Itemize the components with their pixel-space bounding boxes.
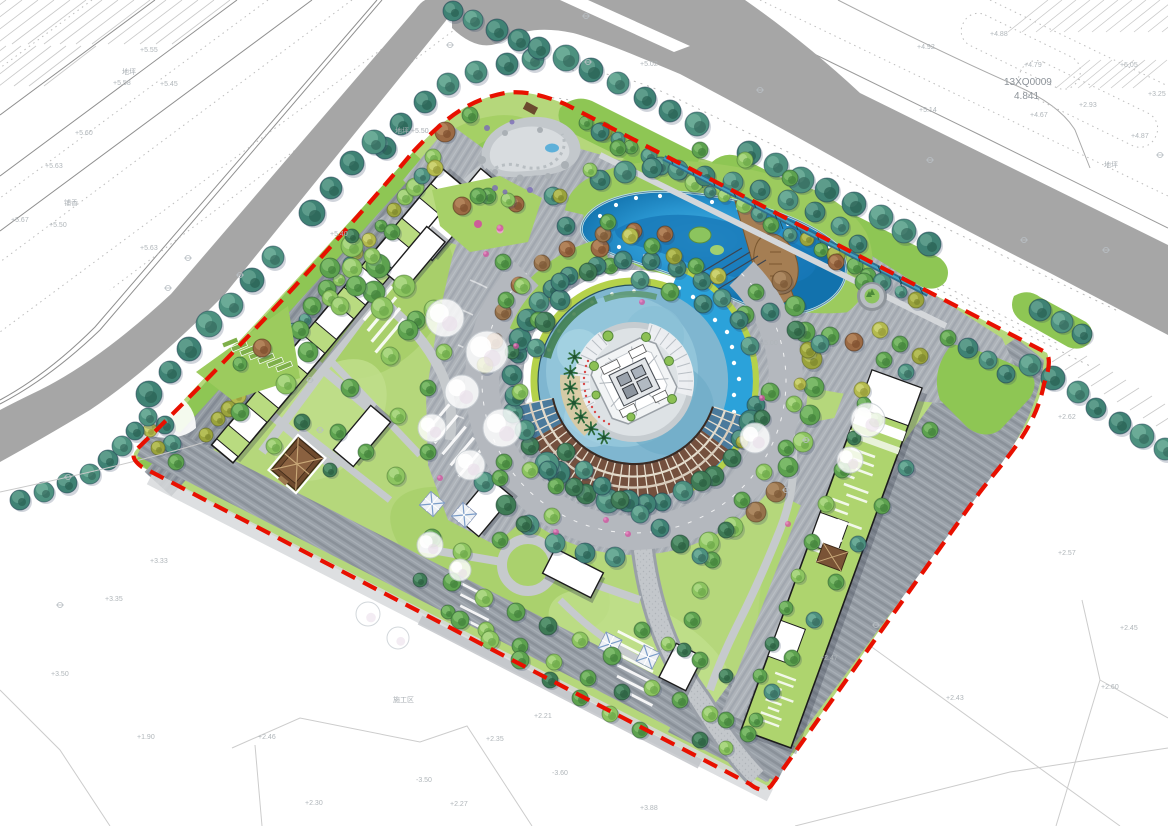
svg-text:+5.63: +5.63 bbox=[140, 245, 158, 252]
svg-text:+3.25: +3.25 bbox=[1148, 91, 1166, 98]
svg-text:+3.50: +3.50 bbox=[51, 671, 69, 678]
svg-text:+5.50: +5.50 bbox=[49, 222, 67, 229]
svg-text:施工区: 施工区 bbox=[393, 695, 414, 704]
svg-text:+2.57: +2.57 bbox=[1058, 550, 1076, 557]
svg-text:+5.00: +5.00 bbox=[760, 340, 778, 347]
svg-text:+2.93: +2.93 bbox=[1079, 102, 1097, 109]
svg-text:铺香: 铺香 bbox=[64, 198, 78, 207]
svg-text:+5.14: +5.14 bbox=[919, 107, 937, 114]
svg-text:地坪: 地坪 bbox=[122, 67, 136, 76]
svg-text:+2.46: +2.46 bbox=[258, 734, 276, 741]
svg-text:+5.67: +5.67 bbox=[11, 217, 29, 224]
svg-text:+4.67: +4.67 bbox=[1030, 112, 1048, 119]
svg-text:+2.62: +2.62 bbox=[1058, 414, 1076, 421]
svg-text:+3.88: +3.88 bbox=[640, 805, 658, 812]
svg-text:+2.30: +2.30 bbox=[305, 800, 323, 807]
svg-text:+5.02: +5.02 bbox=[640, 61, 658, 68]
svg-text:13XQ0009: 13XQ0009 bbox=[1004, 77, 1052, 88]
svg-text:+4.92: +4.92 bbox=[917, 44, 935, 51]
svg-text:+4.88: +4.88 bbox=[990, 31, 1008, 38]
svg-text:-3.60: -3.60 bbox=[552, 770, 568, 777]
svg-text:+5.58: +5.58 bbox=[113, 80, 131, 87]
svg-text:+2.60: +2.60 bbox=[1101, 684, 1119, 691]
svg-text:+2.21: +2.21 bbox=[534, 713, 552, 720]
svg-text:+3.35: +3.35 bbox=[105, 596, 123, 603]
svg-text:4.841: 4.841 bbox=[1014, 91, 1039, 102]
svg-text:+3.33: +3.33 bbox=[150, 558, 168, 565]
svg-text:+4.87: +4.87 bbox=[1131, 133, 1149, 140]
svg-text:+2.47: +2.47 bbox=[820, 655, 838, 662]
svg-text:+5.55: +5.55 bbox=[140, 47, 158, 54]
svg-text:+2.43: +2.43 bbox=[946, 695, 964, 702]
svg-text:+5.05: +5.05 bbox=[1120, 62, 1138, 69]
svg-text:+2.27: +2.27 bbox=[450, 801, 468, 808]
svg-text:+5.45: +5.45 bbox=[160, 81, 178, 88]
svg-text:+1.90: +1.90 bbox=[137, 734, 155, 741]
svg-text:+4.79: +4.79 bbox=[1024, 62, 1042, 69]
svg-text:+5.63: +5.63 bbox=[45, 163, 63, 170]
svg-text:地坪: 地坪 bbox=[1104, 160, 1118, 169]
svg-text:+2.45: +2.45 bbox=[1120, 625, 1138, 632]
svg-text:-3.50: -3.50 bbox=[416, 777, 432, 784]
svg-text:+2.35: +2.35 bbox=[486, 736, 504, 743]
svg-text:+5.60: +5.60 bbox=[75, 130, 93, 137]
svg-text:+5.40: +5.40 bbox=[330, 231, 348, 238]
svg-text:地坪 +5.50: 地坪 +5.50 bbox=[395, 126, 429, 135]
